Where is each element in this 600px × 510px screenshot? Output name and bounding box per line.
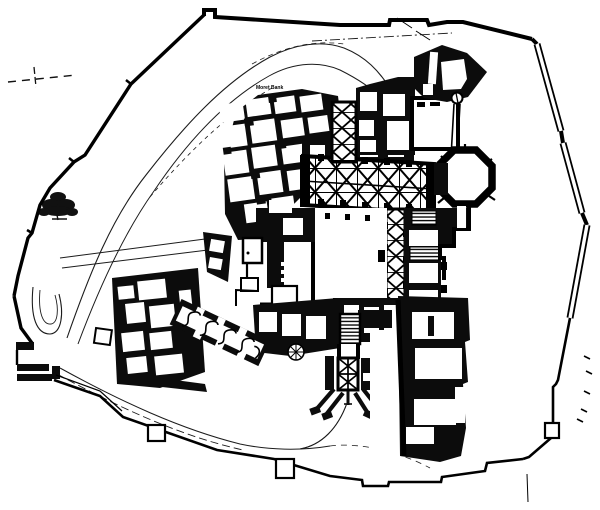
- svg-text:Moret Bank: Moret Bank: [256, 85, 283, 91]
